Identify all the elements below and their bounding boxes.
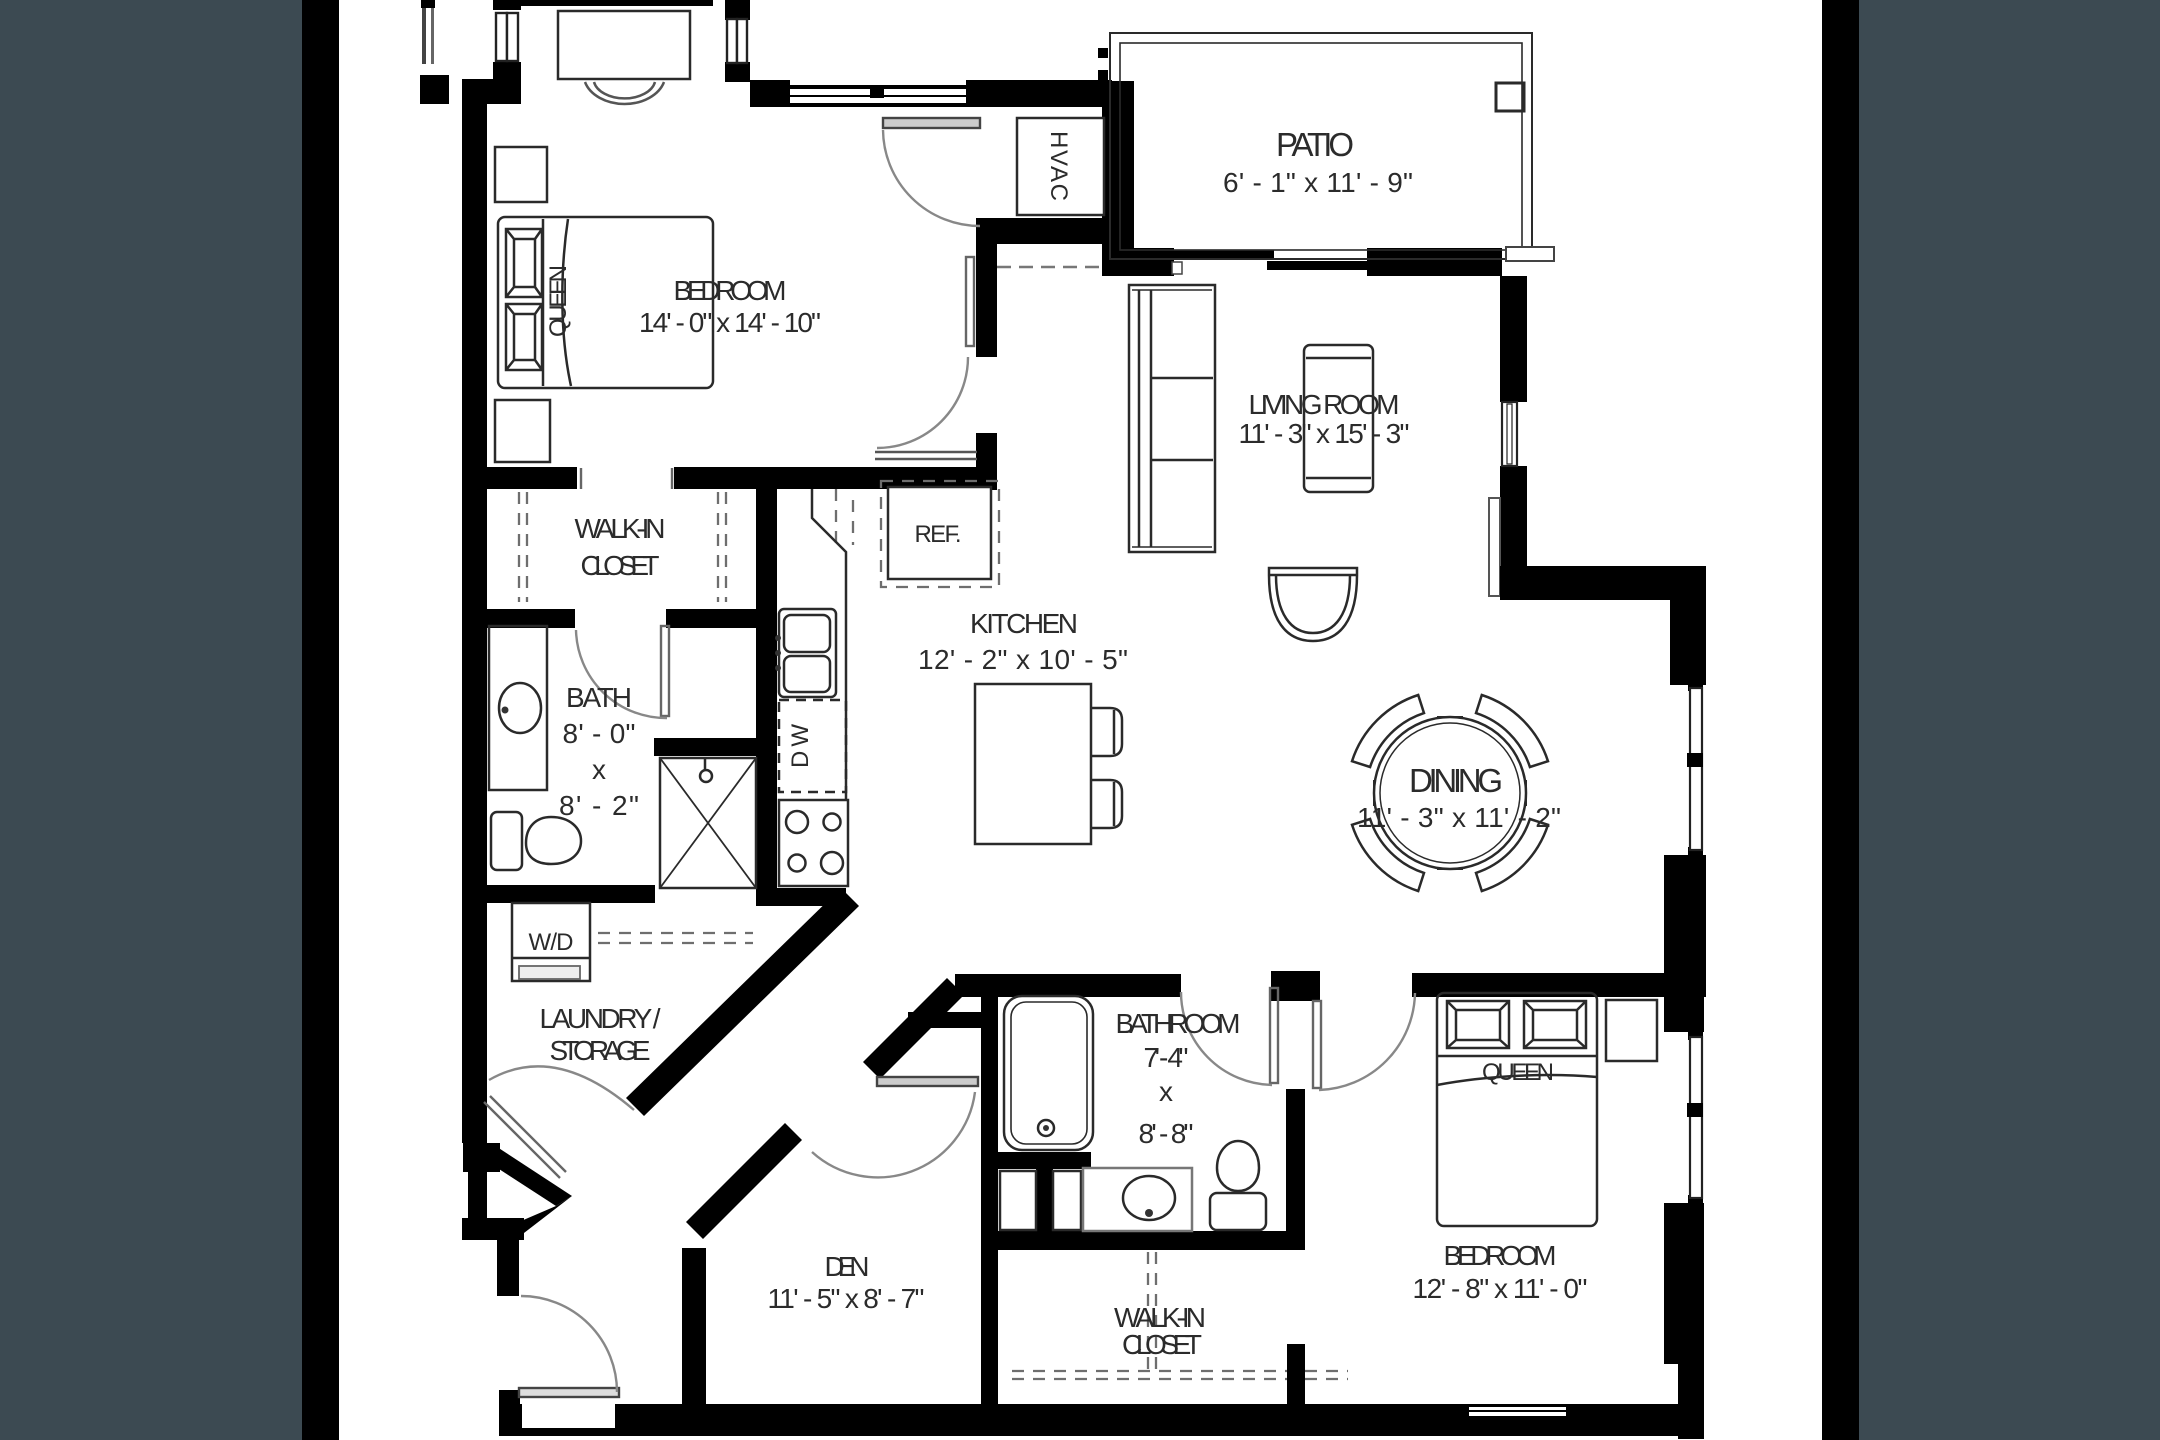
svg-text:CLOSET: CLOSET <box>581 550 660 581</box>
svg-text:12' - 8" x 11' - 0": 12' - 8" x 11' - 0" <box>1413 1273 1588 1304</box>
svg-text:BATHROOM: BATHROOM <box>1116 1008 1241 1039</box>
svg-text:STORAGE: STORAGE <box>550 1035 651 1066</box>
svg-text:8' - 8": 8' - 8" <box>1139 1118 1194 1149</box>
svg-text:8' - 2": 8' - 2" <box>559 790 639 821</box>
svg-text:KITCHEN: KITCHEN <box>970 608 1078 639</box>
svg-text:8' - 0": 8' - 0" <box>563 718 636 749</box>
svg-text:x: x <box>592 754 606 785</box>
svg-text:6' - 1" x 11' - 9": 6' - 1" x 11' - 9" <box>1223 167 1413 198</box>
svg-text:QUEEN: QUEEN <box>545 265 572 337</box>
svg-text:QUEEN: QUEEN <box>1482 1059 1554 1086</box>
svg-text:HVAC: HVAC <box>1045 131 1072 201</box>
svg-text:11' - 3" x 15' - 3": 11' - 3" x 15' - 3" <box>1239 418 1410 449</box>
svg-text:W/D: W/D <box>529 929 574 956</box>
svg-text:CLOSET: CLOSET <box>1122 1329 1202 1360</box>
svg-text:BATH: BATH <box>566 682 632 713</box>
svg-text:14' - 0" x 14' - 10": 14' - 0" x 14' - 10" <box>639 307 821 338</box>
svg-text:DW: DW <box>787 724 814 768</box>
svg-text:LAUNDRY /: LAUNDRY / <box>540 1003 661 1034</box>
svg-text:x: x <box>1159 1076 1173 1107</box>
svg-text:11' - 3" x 11' - 2": 11' - 3" x 11' - 2" <box>1357 802 1561 833</box>
svg-text:WALK-IN: WALK-IN <box>575 513 666 544</box>
svg-text:BEDROOM: BEDROOM <box>1444 1240 1557 1271</box>
svg-text:REF.: REF. <box>915 521 962 548</box>
svg-text:BEDROOM: BEDROOM <box>674 275 787 306</box>
svg-text:PATIO: PATIO <box>1276 126 1354 163</box>
svg-text:DEN: DEN <box>825 1251 870 1282</box>
svg-text:7' - 4": 7' - 4" <box>1144 1042 1189 1073</box>
svg-text:LIVING ROOM: LIVING ROOM <box>1249 389 1400 420</box>
svg-text:DINING: DINING <box>1409 762 1503 799</box>
svg-text:11' - 5" x 8' - 7": 11' - 5" x 8' - 7" <box>768 1283 925 1314</box>
svg-text:12' - 2" x 10' - 5": 12' - 2" x 10' - 5" <box>918 644 1128 675</box>
